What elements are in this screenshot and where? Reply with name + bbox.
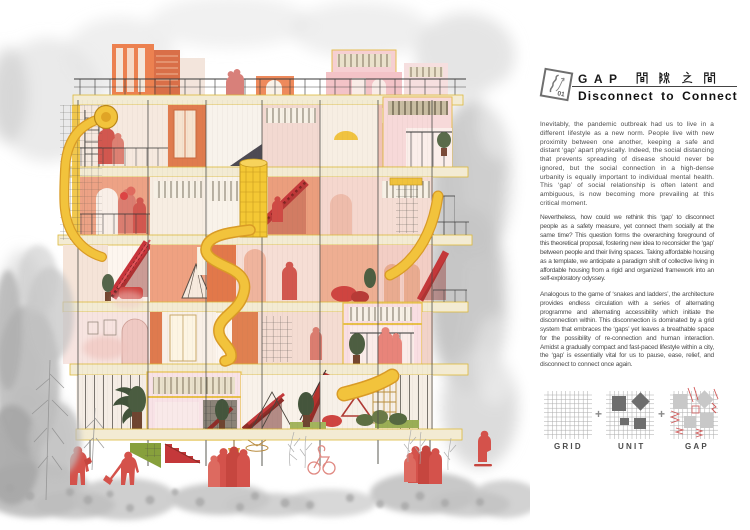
svg-text:+: + (595, 407, 602, 421)
svg-text:GRID: GRID (554, 442, 583, 451)
svg-text:GAP: GAP (685, 442, 709, 451)
svg-text:+: + (658, 407, 665, 421)
svg-text:01: 01 (557, 90, 566, 98)
svg-text:UNIT: UNIT (618, 442, 645, 451)
